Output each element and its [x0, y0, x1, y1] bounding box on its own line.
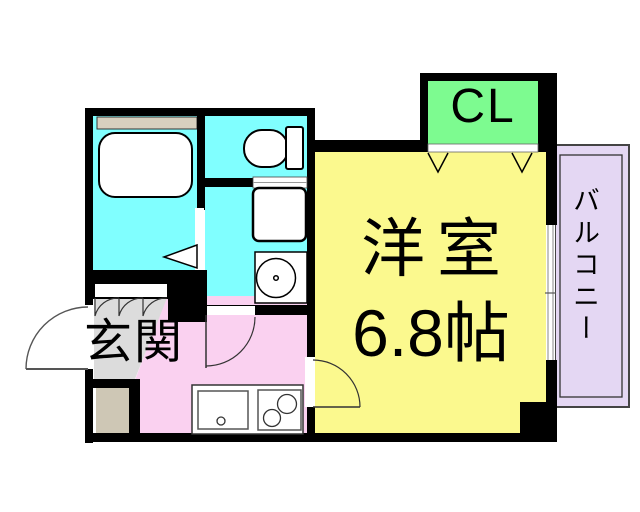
- basin-drain: [274, 276, 279, 281]
- closet-label: CL: [428, 83, 538, 131]
- wall-room-top: [307, 140, 428, 152]
- toilet-tank: [286, 127, 303, 169]
- floor-plan-canvas: [0, 0, 640, 512]
- shoe-cabinet: [94, 283, 168, 298]
- closet-door-track: [428, 144, 538, 152]
- wall-toilet-divider: [205, 178, 253, 187]
- kitchen-door-opening: [207, 306, 255, 315]
- entry-door-arc: [26, 307, 88, 369]
- entrance-label: 玄関: [84, 319, 184, 367]
- floorplan: 玄関 CL 洋室 6.8帖 バルコニー: [0, 0, 640, 512]
- wall-porch-right: [129, 388, 140, 434]
- room-name-label: 洋室: [321, 217, 541, 281]
- wall-washroom-right-lower: [307, 407, 315, 434]
- wall-bottom: [85, 433, 557, 442]
- wall-bath-washroom: [197, 108, 205, 210]
- washer-pan: [253, 188, 306, 241]
- room-western: [307, 140, 546, 434]
- wall-right-upper: [546, 140, 557, 225]
- room-door-opening: [305, 357, 315, 407]
- bath-counter: [97, 117, 197, 129]
- toilet-bowl: [244, 130, 288, 167]
- wall-closet-left: [420, 73, 428, 152]
- wall-left-lower: [85, 369, 93, 443]
- room-size-label: 6.8帖: [321, 300, 541, 366]
- wall-porch-top: [93, 379, 140, 388]
- sink-drain: [217, 417, 225, 425]
- bathtub: [99, 133, 192, 197]
- balcony-label: バルコニー: [570, 186, 597, 376]
- wall-left-upper: [85, 108, 93, 305]
- stove-burner-right: [278, 395, 297, 414]
- stove-burner-left: [264, 410, 281, 427]
- wall-corner-block: [520, 402, 557, 441]
- entrance-porch: [96, 388, 129, 433]
